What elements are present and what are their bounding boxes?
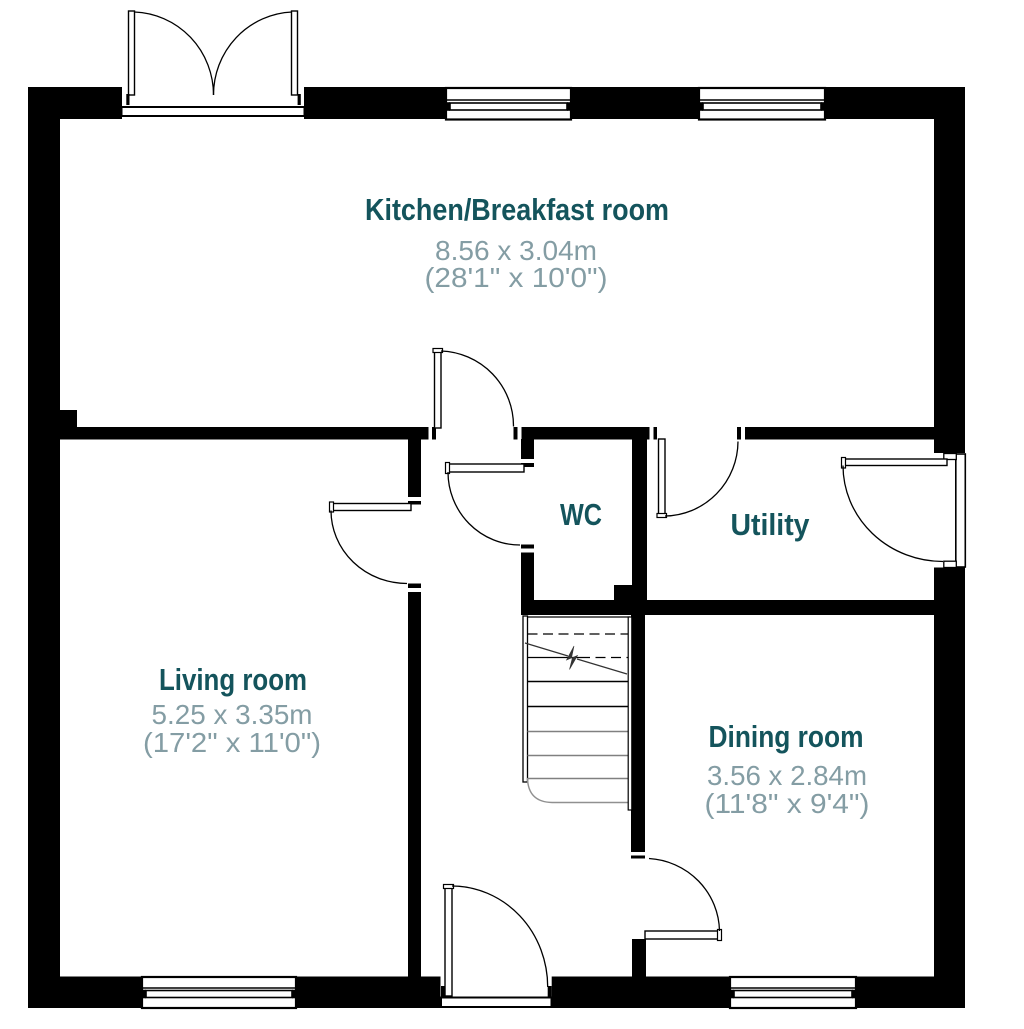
svg-text:5.25 x 3.35m: 5.25 x 3.35m bbox=[152, 699, 313, 730]
svg-text:WC: WC bbox=[560, 497, 602, 532]
svg-text:Living room: Living room bbox=[159, 662, 307, 697]
svg-text:Utility: Utility bbox=[731, 507, 811, 542]
svg-text:(28'1" x 10'0"): (28'1" x 10'0") bbox=[425, 262, 608, 293]
svg-text:(17'2" x 11'0"): (17'2" x 11'0") bbox=[143, 727, 321, 758]
svg-text:Dining room: Dining room bbox=[709, 719, 864, 754]
svg-text:(11'8" x 9'4"): (11'8" x 9'4") bbox=[705, 788, 870, 819]
svg-text:Kitchen/Breakfast room: Kitchen/Breakfast room bbox=[365, 192, 669, 227]
svg-text:3.56 x 2.84m: 3.56 x 2.84m bbox=[707, 760, 867, 791]
